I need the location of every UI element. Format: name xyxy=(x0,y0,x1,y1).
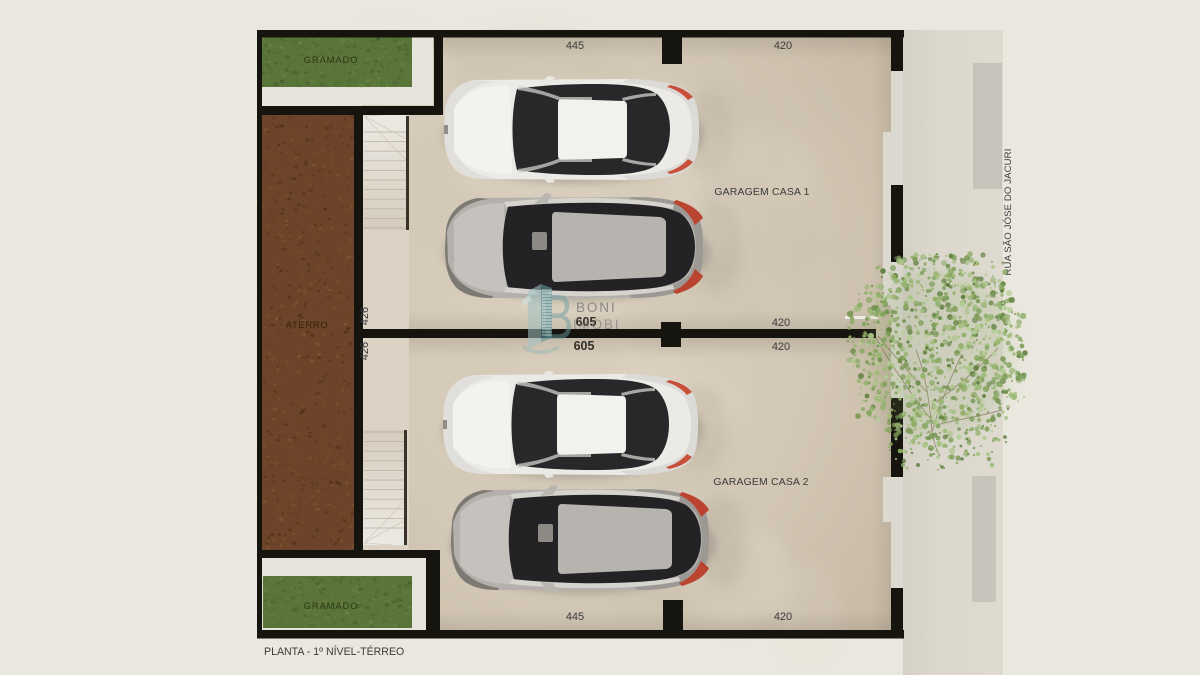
svg-text:GRAMADO: GRAMADO xyxy=(304,601,359,612)
svg-text:GARAGEM CASA 1: GARAGEM CASA 1 xyxy=(714,187,809,198)
svg-text:PLANTA - 1º NÍVEL-TÉRREO: PLANTA - 1º NÍVEL-TÉRREO xyxy=(264,645,404,658)
svg-text:445: 445 xyxy=(566,40,584,52)
svg-text:420: 420 xyxy=(772,317,790,329)
svg-text:IMOBI: IMOBI xyxy=(573,317,620,332)
svg-text:GARAGEM CASA 2: GARAGEM CASA 2 xyxy=(713,477,808,488)
svg-text:420: 420 xyxy=(774,40,792,52)
svg-text:GRAMADO: GRAMADO xyxy=(304,55,359,66)
svg-text:420: 420 xyxy=(774,611,792,623)
svg-text:426: 426 xyxy=(359,342,371,360)
svg-text:605: 605 xyxy=(574,339,595,353)
svg-text:426: 426 xyxy=(359,307,371,325)
svg-text:420: 420 xyxy=(772,341,790,353)
svg-text:RUA SÃO JÓSE DO JACURI: RUA SÃO JÓSE DO JACURI xyxy=(1003,149,1014,276)
svg-text:BONI: BONI xyxy=(576,300,617,315)
svg-text:ATERRO: ATERRO xyxy=(286,320,328,331)
svg-text:445: 445 xyxy=(566,611,584,623)
